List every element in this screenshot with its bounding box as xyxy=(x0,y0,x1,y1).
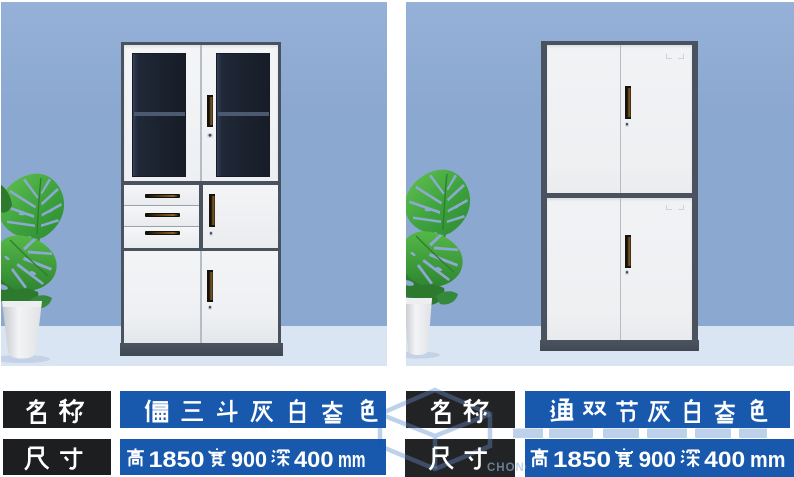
svg-text:900: 900 xyxy=(639,447,676,472)
svg-text:400: 400 xyxy=(294,447,334,472)
svg-text:mm: mm xyxy=(338,447,366,472)
svg-text:1850: 1850 xyxy=(553,447,611,472)
svg-text:400: 400 xyxy=(704,447,745,472)
svg-text:mm: mm xyxy=(750,447,785,472)
svg-text:900: 900 xyxy=(231,447,267,472)
svg-text:1850: 1850 xyxy=(149,447,205,472)
